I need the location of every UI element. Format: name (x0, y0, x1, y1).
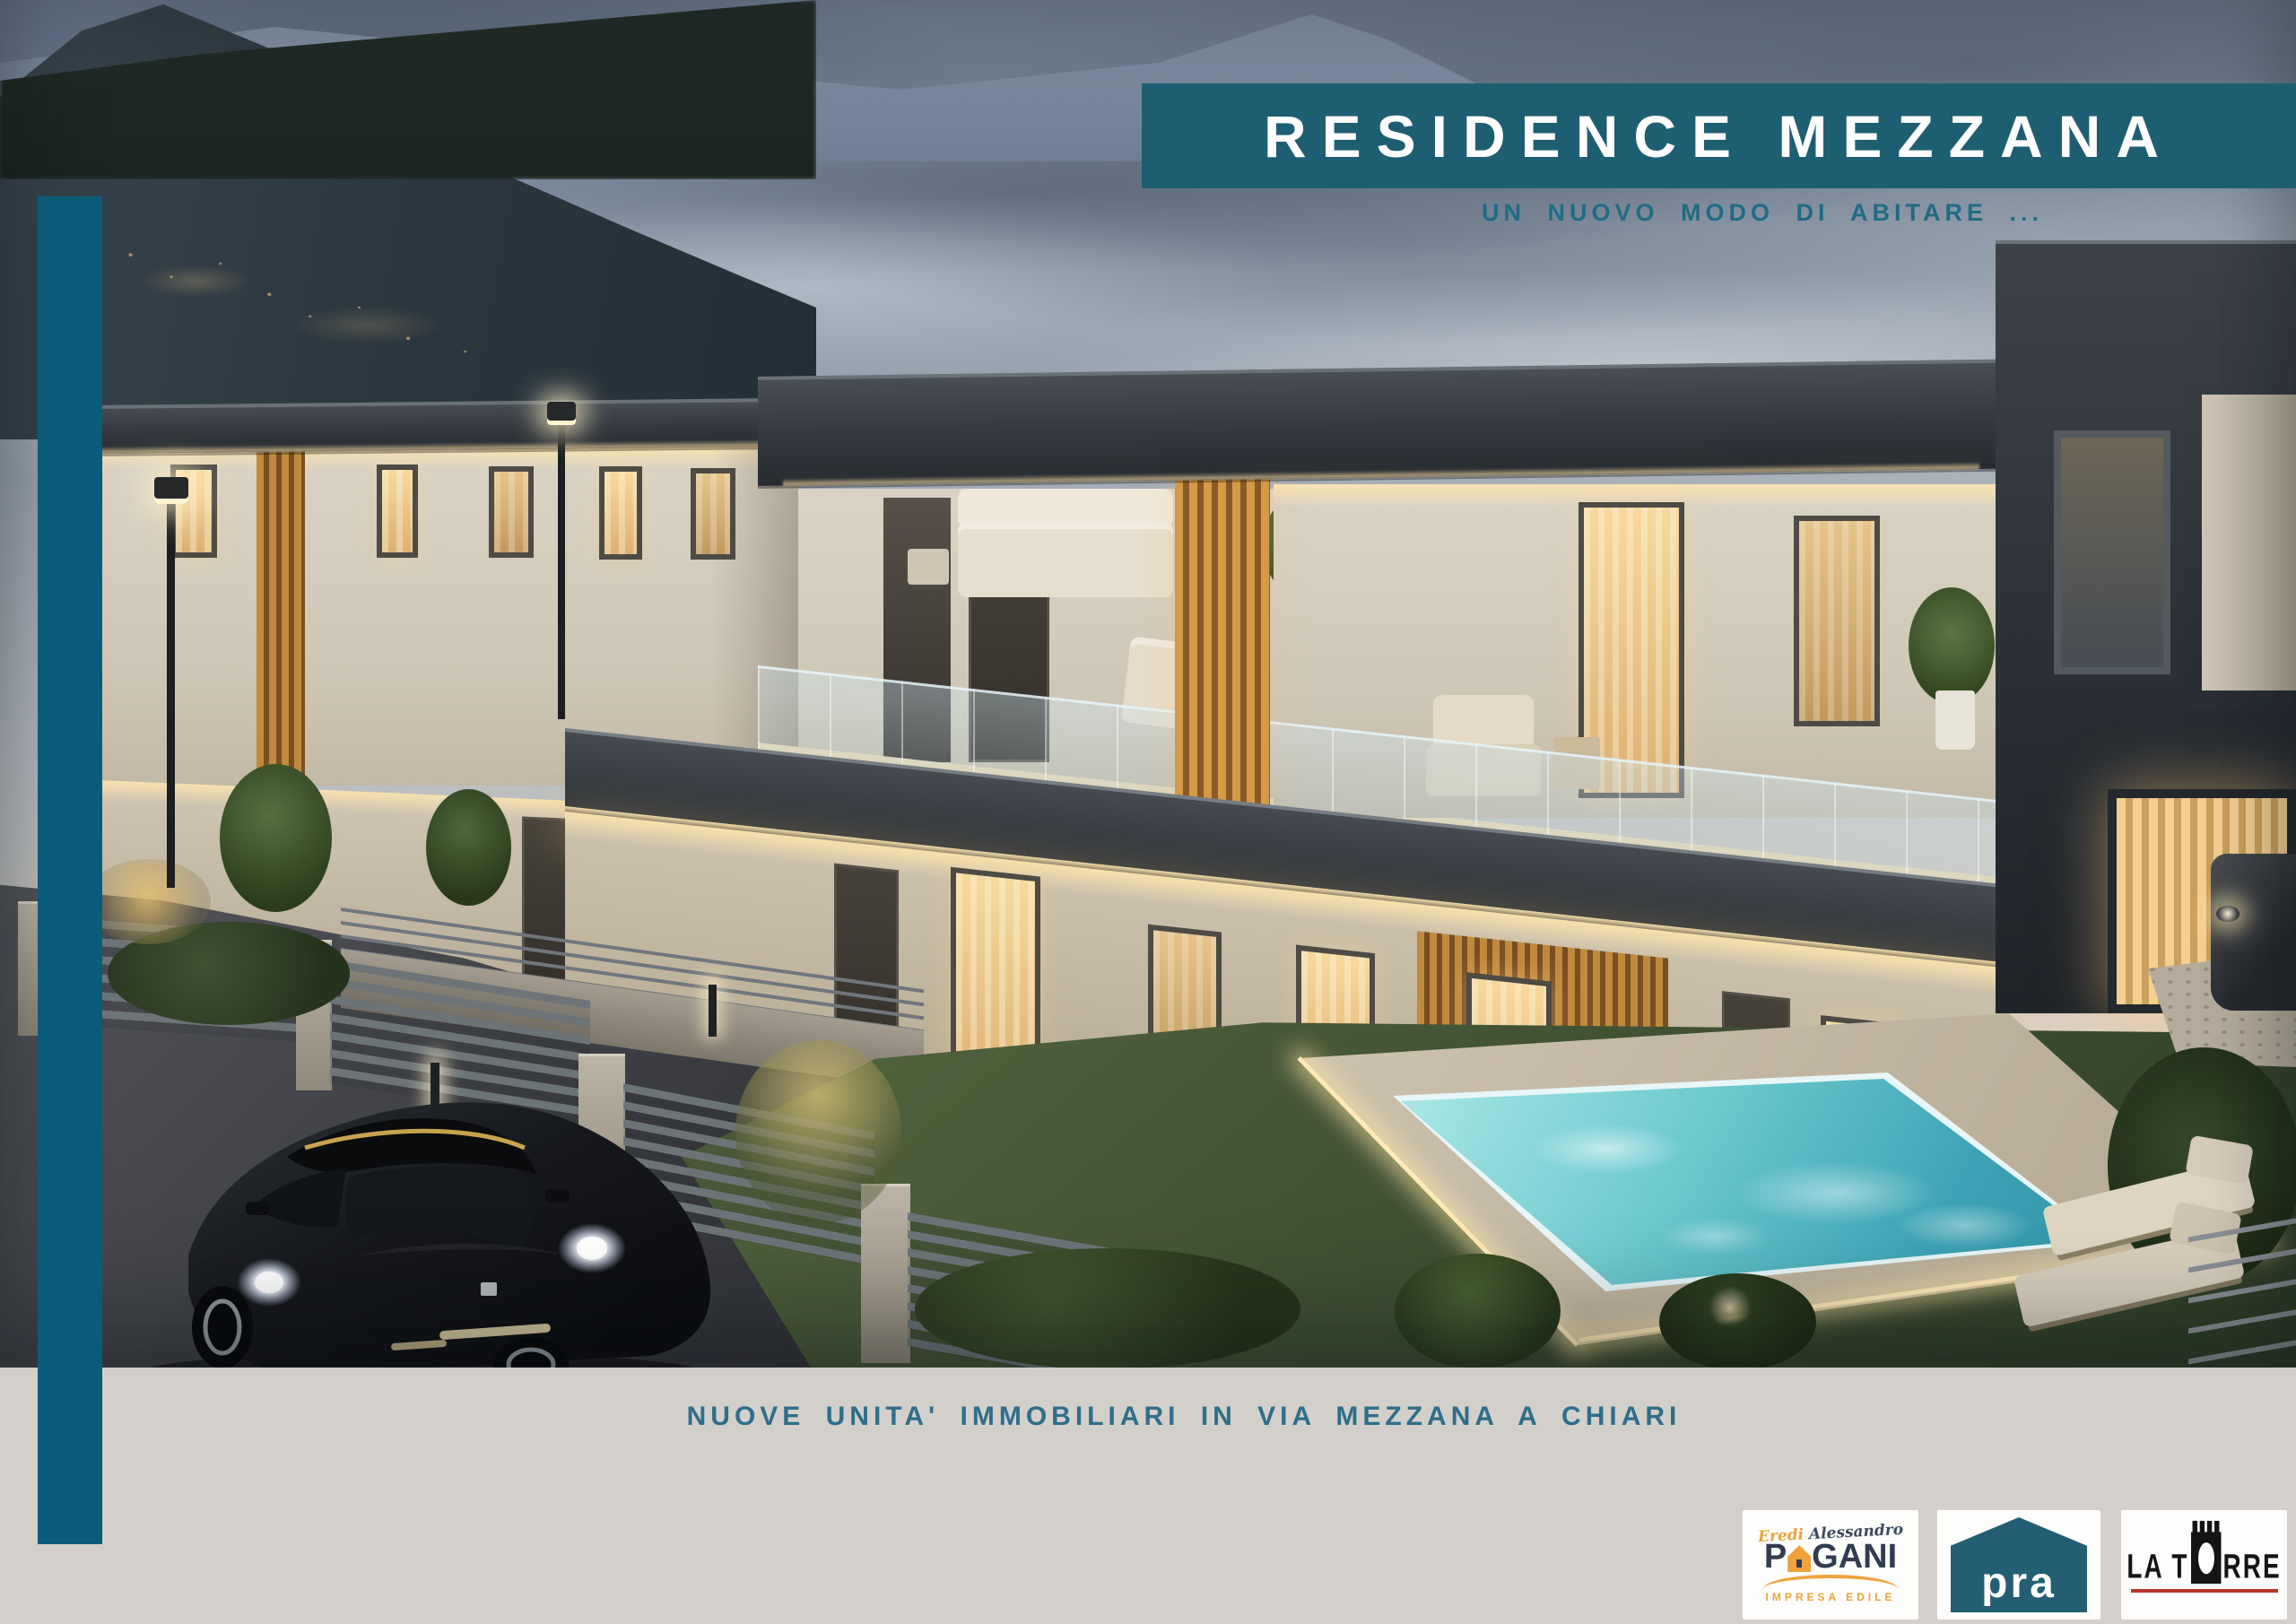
sports-car (126, 1013, 717, 1368)
la-torre-right: RRE (2223, 1550, 2282, 1584)
side-mirror (246, 1202, 270, 1215)
tower-icon (2191, 1521, 2222, 1584)
corner-railing (2188, 1217, 2296, 1368)
lit-grasses (85, 859, 211, 944)
pagani-tagline: IMPRESA EDILE (1766, 1591, 1896, 1603)
pagani-name-suffix: GANI (1812, 1541, 1897, 1572)
page-title: RESIDENCE MEZZANA (1264, 102, 2174, 170)
wood-slat-strip (257, 448, 305, 782)
logo-pra: pra (1937, 1510, 2100, 1620)
flyer: RESIDENCE MEZZANA UN NUOVO MODO DI ABITA… (0, 0, 2296, 1624)
right-house-roof (758, 360, 2005, 486)
window (377, 465, 418, 558)
house-icon: pra (1951, 1517, 2087, 1612)
la-torre-left: LA T (2126, 1550, 2188, 1584)
window (691, 468, 735, 560)
garden-tree (1659, 1273, 1816, 1368)
window (1794, 516, 1880, 726)
street-lamp-pole (167, 502, 175, 888)
parapet-highlight (1996, 240, 2296, 244)
street-lamp-head (154, 477, 188, 504)
parked-car (2211, 854, 2296, 1011)
left-house-roof (63, 398, 817, 455)
window (489, 466, 534, 558)
garden-tree (1395, 1254, 1561, 1368)
street-lamp-head (547, 402, 576, 425)
pagani-wordmark: P GANI (1764, 1541, 1897, 1572)
side-mirror (545, 1189, 570, 1203)
ornamental-grasses (735, 1040, 901, 1224)
tower-window (2054, 430, 2170, 674)
red-underline (2131, 1589, 2278, 1593)
arc-underline (1763, 1575, 1898, 1589)
left-accent-bar (38, 196, 102, 1544)
window (599, 466, 642, 560)
house-icon (1787, 1545, 1811, 1572)
street-lamp-pole (558, 423, 565, 719)
shrub (426, 789, 511, 906)
headlight (577, 1237, 607, 1260)
la-torre-wordmark: LA T RRE (2126, 1521, 2281, 1584)
hood-badge (481, 1282, 497, 1296)
sofa (958, 522, 1173, 597)
side-table (908, 549, 949, 585)
pra-wordmark: pra (1981, 1562, 2057, 1605)
footer-caption: NUOVE UNITA' IMMOBILIARI IN VIA MEZZANA … (628, 1402, 1740, 1432)
footer-band: NUOVE UNITA' IMMOBILIARI IN VIA MEZZANA … (0, 1368, 2296, 1624)
pagani-script-first: Eredi (1757, 1525, 1804, 1546)
car-headlight (2216, 906, 2239, 922)
pagani-name-prefix: P (1764, 1541, 1787, 1572)
palm-shrub (220, 764, 332, 912)
page-subtitle: UN NUOVO MODO DI ABITARE ... (1466, 199, 2058, 227)
white-planter (1935, 690, 1975, 750)
headlight (255, 1272, 283, 1293)
palm-plant (1909, 587, 1995, 704)
side-lit-wall (2202, 395, 2296, 690)
title-banner: RESIDENCE MEZZANA (1142, 83, 2296, 188)
fence-post (861, 1184, 910, 1363)
logo-pagani: Eredi Alessandro P GANI IMPRESA EDILE (1743, 1510, 1918, 1620)
hedge (915, 1248, 1300, 1368)
logo-la-torre: LA T RRE (2121, 1510, 2287, 1620)
